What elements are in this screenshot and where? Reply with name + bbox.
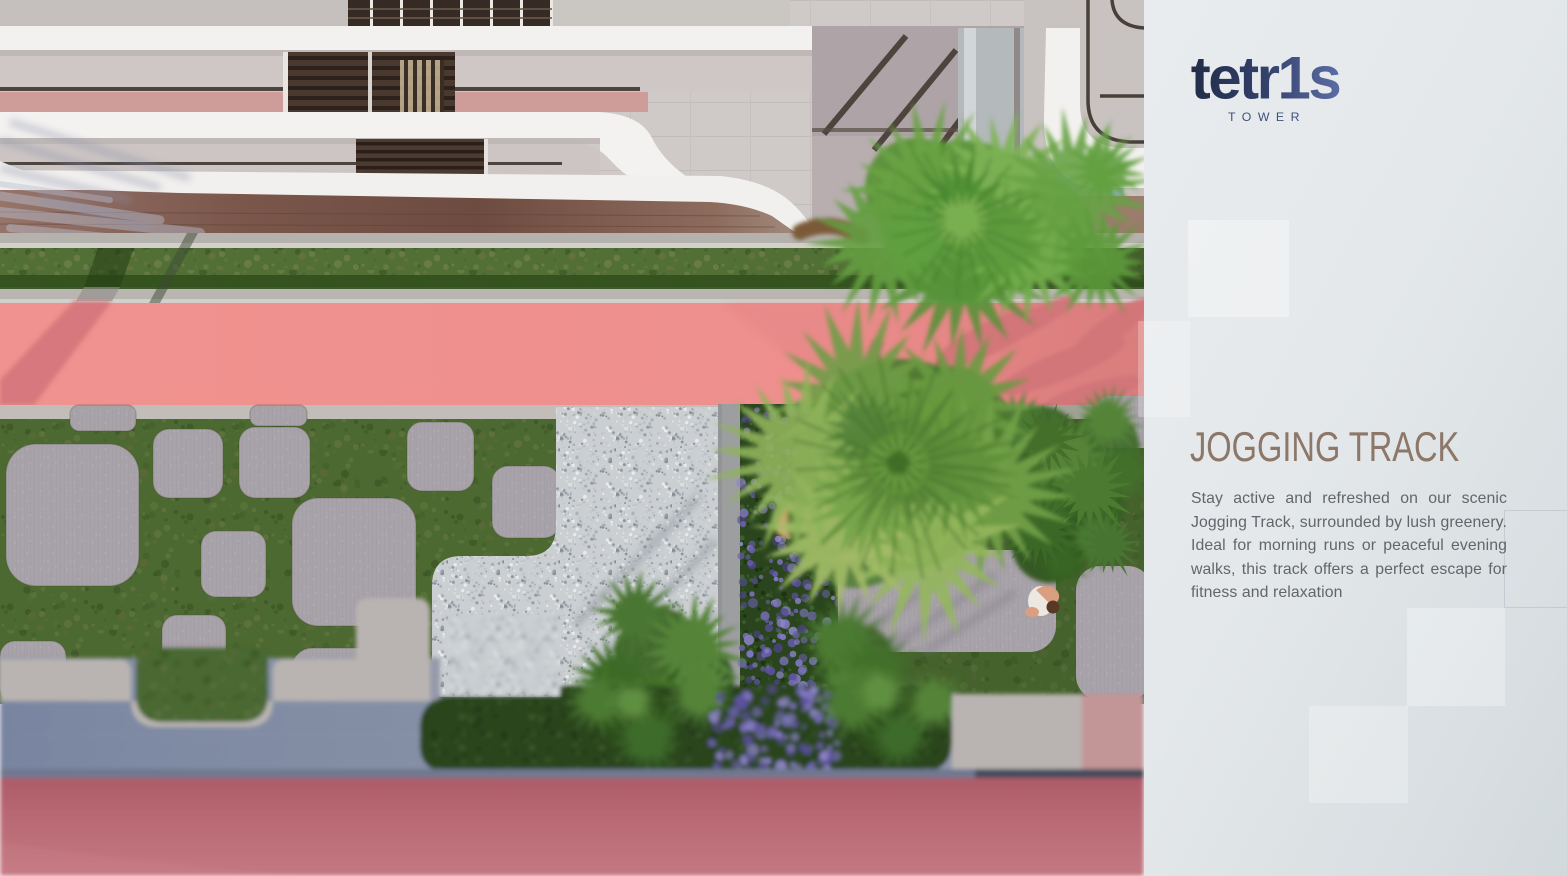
svg-text:TOWER: TOWER	[1228, 110, 1306, 124]
svg-text:tetr1s: tetr1s	[1191, 46, 1340, 112]
